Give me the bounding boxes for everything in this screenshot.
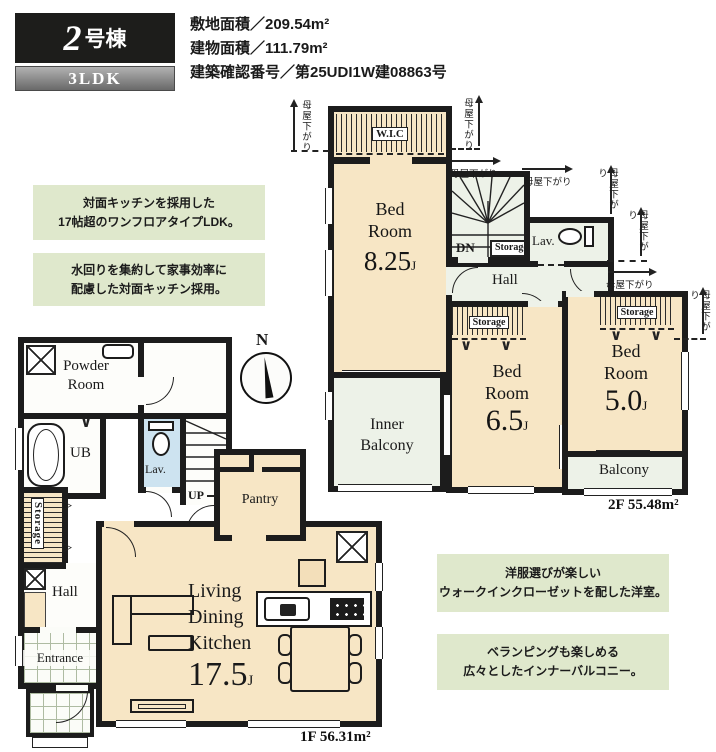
pantry-label: Pantry	[218, 492, 302, 508]
note-line: ウォークインクローゼットを配した洋室。	[437, 583, 669, 602]
door-arc	[146, 491, 172, 517]
lav-1f-label: Lav.	[145, 462, 166, 477]
bathtub-icon	[27, 423, 65, 487]
room-name: Bed	[612, 341, 641, 361]
window	[443, 395, 451, 455]
note-line: 水回りを集約して家事効率に	[33, 261, 265, 280]
toilet-icon	[152, 432, 170, 456]
bedroom-825-label: Bed Room 8.25J	[336, 198, 444, 277]
storage-label-wrap: Storage	[600, 302, 674, 320]
bathtub-inner-icon	[33, 429, 59, 481]
window	[375, 563, 383, 591]
sofa-side-icon	[112, 595, 132, 645]
toilet-tank-icon	[584, 226, 594, 247]
balcony-label: Balcony	[568, 462, 680, 479]
bedroom-65-label: Bed Room 6.5J	[452, 360, 562, 437]
room-name: Powder	[63, 358, 109, 374]
inner-balcony-label: Inner Balcony	[334, 414, 440, 456]
note-box-kitchen: 水回りを集約して家事効率に 配慮した対面キッチン採用。	[33, 253, 265, 306]
refrigerator-icon	[336, 531, 368, 563]
moya-label: 母屋下がり	[462, 98, 473, 154]
room-name: Dining	[188, 606, 244, 628]
moya-arrow-up-icon	[478, 102, 480, 146]
room-name: Room	[604, 363, 648, 383]
room-size: 5.0	[605, 384, 643, 417]
storage-label: Storage	[31, 498, 44, 549]
opening	[66, 563, 96, 569]
wic-label: W.I.C	[372, 127, 408, 141]
moya-arrow-right-icon	[452, 160, 494, 162]
note-box-ldk: 対面キッチンを採用した 17帖超のワンフロアタイプLDK。	[33, 185, 265, 240]
window	[338, 484, 432, 492]
moya-label: 母屋下がり	[626, 210, 648, 262]
chair-icon	[348, 662, 362, 684]
moya-arrow-up-icon	[610, 172, 612, 214]
hall-2f-label: Hall	[492, 272, 518, 289]
kitchen-sink-icon	[264, 597, 310, 621]
room-name: Bed	[493, 361, 522, 381]
folding-door-icon	[62, 496, 72, 514]
cabinet-icon	[24, 568, 46, 590]
moya-label: 母屋下がり	[688, 290, 710, 342]
site-area: 敷地面積／209.54m²	[190, 13, 447, 37]
note-line: 広々としたインナーバルコニー。	[437, 662, 669, 681]
wall-stub	[334, 157, 370, 164]
room-size-unit: J	[523, 418, 528, 433]
toilet-icon	[558, 228, 582, 245]
storage-label: Storage	[617, 306, 658, 319]
toilet-tank-icon	[148, 421, 174, 431]
confirmation-number: 建築確認番号／第25UDI1W建08863号	[190, 61, 447, 85]
note-line: 配慮した対面キッチン採用。	[33, 280, 265, 299]
moya-arrow-right-icon	[522, 168, 566, 170]
moya-dash	[291, 150, 329, 152]
dashed-opening	[538, 264, 564, 266]
tv-board-icon	[130, 699, 194, 713]
note-box-wic: 洋服選びが楽しい ウォークインクローゼットを配した洋室。	[437, 554, 669, 612]
lav-2f-label: Lav.	[532, 233, 555, 249]
moya-dash	[607, 260, 647, 262]
compass-icon	[240, 352, 292, 404]
building-area: 建物面積／111.79m²	[190, 37, 447, 61]
room-name: Kitchen	[188, 632, 251, 654]
wic-label-wrap: W.I.C	[336, 124, 444, 142]
wall-stub	[262, 467, 300, 472]
moya-arrow-right-icon	[608, 271, 650, 273]
note-line: 対面キッチンを採用した	[33, 194, 265, 213]
window	[681, 352, 689, 410]
closet-door-icon	[500, 336, 512, 355]
note-box-balcony: ベランピングも楽しめる 広々としたインナーバルコニー。	[437, 634, 669, 690]
compass-north-label: N	[256, 330, 268, 350]
tv-icon	[138, 704, 186, 709]
building-number: 2	[64, 20, 82, 56]
room-size-unit: J	[642, 398, 647, 413]
chair-icon	[348, 634, 362, 656]
window	[248, 720, 340, 728]
room-size: 17.5	[188, 656, 248, 693]
moya-label: 母屋下がり	[596, 168, 618, 220]
moya-label: 母屋下がり	[300, 100, 311, 156]
wall-stub	[249, 453, 254, 469]
moya-label: 母屋下がり	[450, 166, 498, 180]
storage-label: Storage	[469, 316, 510, 329]
closet-door-icon	[460, 336, 472, 355]
shoe-cabinet-icon	[24, 592, 46, 628]
storage-1f-label-wrap: Storage	[31, 498, 44, 554]
building-suffix: 号棟	[85, 23, 127, 53]
opening	[104, 521, 134, 527]
moya-dash	[674, 338, 706, 340]
room-name: Living	[188, 580, 241, 602]
opening	[40, 627, 76, 633]
floor-1-area-label: 1F 56.31m²	[300, 729, 371, 746]
dining-table-icon	[290, 626, 350, 692]
porch-step	[32, 737, 88, 748]
room-size: 6.5	[486, 404, 524, 437]
room-size-unit: J	[248, 673, 254, 689]
window	[325, 188, 333, 224]
hall-1f-label: Hall	[52, 584, 78, 601]
room-name: Balcony	[360, 437, 413, 454]
dn-label: DN	[456, 240, 475, 256]
stove-icon	[330, 598, 364, 620]
entrance-label: Entrance	[22, 650, 98, 666]
window	[468, 486, 534, 494]
floor-2-area-label: 2F 55.48m²	[608, 497, 679, 514]
storage-label-wrap: Storage	[452, 312, 526, 330]
bedroom-50-label: Bed Room 5.0J	[570, 340, 682, 417]
moya-label: 母屋下がり	[524, 174, 572, 188]
opening	[232, 533, 266, 543]
opening	[138, 377, 144, 405]
room-size-unit: J	[411, 258, 416, 273]
note-line: 17帖超のワンフロアタイプLDK。	[33, 213, 265, 232]
opening	[566, 291, 594, 297]
opening	[458, 257, 488, 263]
window	[15, 636, 23, 666]
room-name: Bed	[376, 199, 405, 219]
moya-label: 母屋下がり	[606, 277, 654, 291]
moya-dash	[450, 148, 480, 150]
door-icon	[80, 413, 92, 432]
moya-arrow-up-icon	[702, 294, 704, 334]
sink-basin-icon	[280, 604, 296, 616]
moya-arrow-up-icon	[640, 214, 642, 256]
property-specs: 敷地面積／209.54m² 建物面積／111.79m² 建築確認番号／第25UD…	[190, 13, 447, 85]
room-name: Room	[368, 221, 412, 241]
plan-type-badge: 3LDK	[15, 66, 175, 91]
window	[116, 720, 186, 728]
moya-arrow-up-icon	[293, 106, 295, 150]
opening	[186, 499, 214, 505]
ldk-label: Living Dining Kitchen 17.5J	[188, 578, 253, 700]
note-line: 洋服選びが楽しい	[437, 564, 669, 583]
powder-room-label: Powder Room	[40, 357, 132, 395]
room-name: Inner	[370, 416, 404, 433]
room-name: Room	[68, 377, 105, 393]
window	[375, 627, 383, 659]
wall-stub	[412, 157, 446, 164]
kitchen-island-icon	[298, 559, 326, 587]
room-name: Room	[485, 383, 529, 403]
floorplan-flyer: 2 号棟 3LDK 敷地面積／209.54m² 建物面積／111.79m² 建築…	[0, 0, 716, 752]
note-line: ベランピングも楽しめる	[437, 643, 669, 662]
window	[15, 428, 23, 470]
window	[325, 392, 333, 420]
building-badge: 2 号棟	[15, 13, 175, 63]
window	[325, 250, 333, 296]
plan-type-label: 3LDK	[68, 69, 121, 89]
opening	[528, 301, 558, 307]
compass-needle-icon	[261, 357, 274, 399]
window	[584, 488, 672, 496]
ub-label: UB	[70, 445, 91, 462]
folding-door-icon	[62, 538, 72, 556]
wic-dashed-line	[336, 153, 444, 155]
room-size: 8.25	[364, 246, 411, 276]
